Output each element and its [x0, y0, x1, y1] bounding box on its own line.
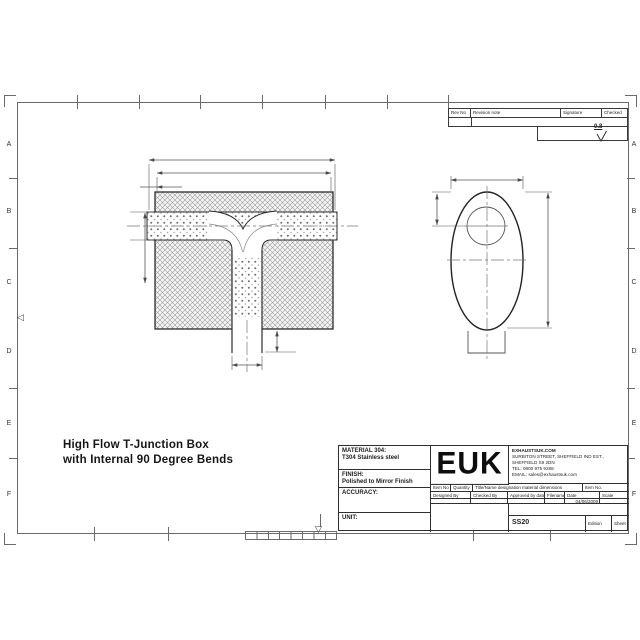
finish-cell: FINISH: Polished to Mirror Finish [339, 470, 431, 488]
finish-value: Polished to Mirror Finish [342, 479, 430, 486]
title-block-blank-cell [431, 504, 509, 532]
company-address-cell: EXHAUSTSUK.COM SURBITON STREET, SHEFFIEL… [509, 446, 629, 484]
drawing-title-line2: with Internal 90 Degree Bends [63, 453, 233, 468]
front-section-view [147, 192, 337, 353]
accuracy-cell: ACCURACY: [339, 488, 431, 513]
drawing-views [0, 0, 640, 640]
drawing-number-cell: SS20 [509, 516, 586, 532]
unit-cell: UNIT: [339, 513, 431, 532]
unit-label: UNIT: [342, 515, 430, 522]
edition-cell: Edition [586, 516, 612, 532]
filename-header: Filename [545, 492, 565, 499]
accuracy-label: ACCURACY: [342, 490, 430, 497]
finish-label: FINISH: [342, 472, 430, 479]
item-no2-header: Item No. [583, 484, 629, 492]
material-label: MATERIAL 304: [342, 448, 430, 455]
drawing-title-line1: High Flow T-Junction Box [63, 438, 233, 453]
drawing-title: High Flow T-Junction Box with Internal 9… [63, 438, 233, 468]
date-header: Date [565, 492, 600, 499]
material-cell: MATERIAL 304: T304 Stainless steel [339, 446, 431, 470]
designed-by-header: Designed By [431, 492, 471, 499]
company-logo: EUK [431, 445, 509, 485]
approved-by-header: Approved by date [508, 492, 545, 499]
company-email: EMAIL: sales@exhaustsuk.com [512, 472, 629, 478]
material-value: T304 Stainless steel [342, 455, 430, 462]
designation-header: Title/Name designation material dimensio… [473, 484, 583, 492]
quantity-header: Quantity [451, 484, 473, 492]
title-block-blank-row [509, 504, 629, 516]
checked-by-header: Checked By [471, 492, 508, 499]
item-no-header: Item No [431, 484, 451, 492]
scale-header: Scale [600, 492, 629, 499]
sheet-cell: Sheet [612, 516, 629, 532]
drawing-sheet-page: { "sheet": { "row_labels": ["A", "B", "C… [0, 0, 640, 640]
title-block: MATERIAL 304: T304 Stainless steel FINIS… [338, 445, 628, 531]
